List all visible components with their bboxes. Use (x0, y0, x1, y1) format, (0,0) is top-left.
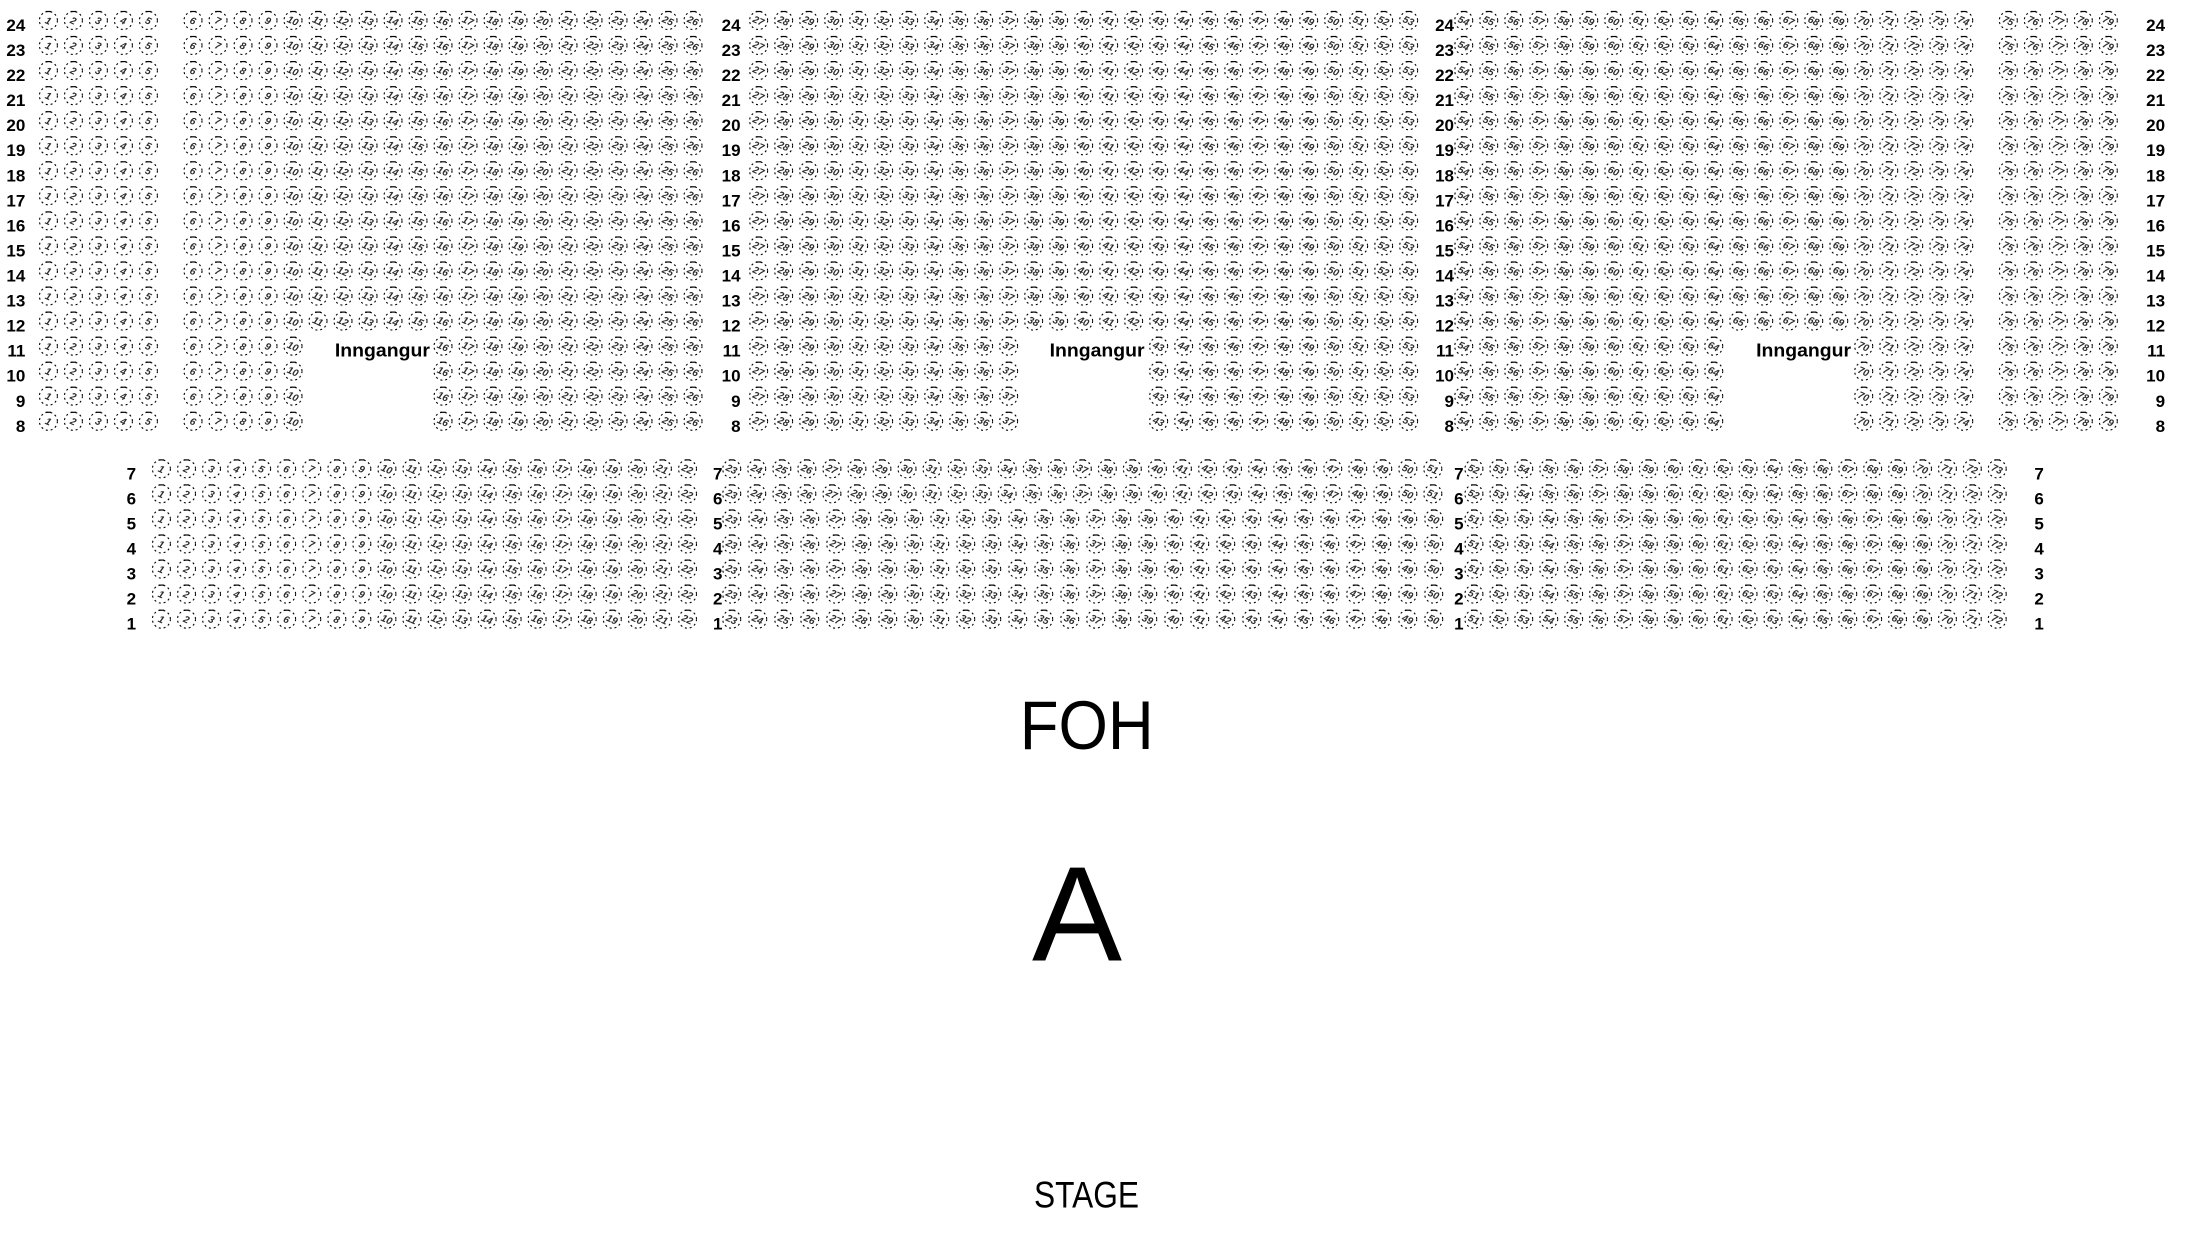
svg-text:77: 77 (2050, 215, 2065, 230)
svg-text:62: 62 (1656, 265, 1671, 280)
svg-text:78: 78 (2075, 390, 2090, 405)
svg-text:5: 5 (127, 515, 136, 534)
svg-text:75: 75 (2000, 215, 2015, 230)
svg-text:77: 77 (2050, 240, 2065, 255)
svg-text:30: 30 (826, 340, 841, 355)
svg-text:35: 35 (1036, 563, 1051, 578)
svg-text:34: 34 (926, 215, 941, 230)
svg-text:17: 17 (460, 165, 475, 180)
svg-text:56: 56 (1506, 340, 1521, 355)
svg-text:56: 56 (1506, 64, 1521, 79)
svg-text:58: 58 (1556, 315, 1571, 330)
svg-text:19: 19 (604, 513, 619, 528)
svg-text:14: 14 (385, 265, 400, 280)
svg-text:59: 59 (1665, 563, 1680, 578)
svg-text:13: 13 (360, 115, 375, 130)
svg-text:61: 61 (1631, 190, 1646, 205)
svg-text:2: 2 (180, 564, 191, 577)
svg-text:75: 75 (2000, 165, 2015, 180)
svg-text:18: 18 (1435, 166, 1454, 185)
svg-text:51: 51 (1351, 340, 1366, 355)
svg-text:32: 32 (876, 365, 891, 380)
svg-text:71: 71 (1964, 563, 1979, 578)
svg-text:61: 61 (1631, 115, 1646, 130)
svg-text:55: 55 (1481, 365, 1496, 380)
svg-text:13: 13 (360, 14, 375, 29)
svg-text:31: 31 (851, 165, 866, 180)
svg-text:5: 5 (143, 116, 153, 128)
svg-text:55: 55 (1566, 563, 1581, 578)
svg-text:5: 5 (143, 15, 153, 27)
svg-text:5: 5 (143, 191, 153, 203)
svg-text:50: 50 (1326, 115, 1341, 130)
svg-text:14: 14 (385, 64, 400, 79)
svg-text:31: 31 (932, 513, 947, 528)
svg-text:59: 59 (1581, 39, 1596, 54)
svg-text:38: 38 (1026, 90, 1041, 105)
svg-text:32: 32 (876, 290, 891, 305)
svg-text:70: 70 (1856, 215, 1871, 230)
svg-text:16: 16 (435, 165, 450, 180)
svg-text:33: 33 (984, 613, 999, 628)
svg-text:59: 59 (1581, 415, 1596, 430)
svg-text:61: 61 (1631, 390, 1646, 405)
svg-text:3: 3 (206, 514, 216, 526)
svg-text:61: 61 (1631, 340, 1646, 355)
svg-text:1: 1 (43, 291, 53, 303)
svg-text:37: 37 (1001, 190, 1016, 205)
svg-text:14: 14 (2146, 267, 2165, 286)
svg-text:71: 71 (1964, 513, 1979, 528)
svg-text:10: 10 (1435, 367, 1454, 386)
svg-text:56: 56 (1506, 14, 1521, 29)
svg-text:72: 72 (1906, 165, 1921, 180)
svg-text:16: 16 (435, 90, 450, 105)
svg-text:31: 31 (851, 265, 866, 280)
svg-text:63: 63 (1681, 315, 1696, 330)
svg-text:4: 4 (230, 488, 241, 501)
svg-text:52: 52 (1491, 513, 1506, 528)
svg-text:58: 58 (1616, 488, 1631, 503)
svg-text:72: 72 (1906, 115, 1921, 130)
svg-text:16: 16 (529, 563, 544, 578)
svg-text:63: 63 (1765, 513, 1780, 528)
svg-text:12: 12 (335, 39, 350, 54)
svg-text:9: 9 (263, 40, 273, 52)
svg-text:62: 62 (1740, 513, 1755, 528)
svg-text:18: 18 (2146, 166, 2165, 185)
svg-text:36: 36 (976, 340, 991, 355)
svg-text:78: 78 (2075, 90, 2090, 105)
svg-text:10: 10 (285, 215, 300, 230)
svg-text:13: 13 (360, 39, 375, 54)
svg-text:13: 13 (360, 315, 375, 330)
svg-text:53: 53 (1491, 488, 1506, 503)
svg-text:1: 1 (156, 614, 166, 626)
svg-text:73: 73 (1931, 140, 1946, 155)
svg-text:17: 17 (6, 191, 25, 210)
svg-text:2: 2 (67, 366, 78, 379)
svg-text:66: 66 (1756, 290, 1771, 305)
svg-text:56: 56 (1506, 39, 1521, 54)
svg-text:10: 10 (285, 390, 300, 405)
svg-text:64: 64 (1790, 513, 1805, 528)
svg-text:37: 37 (1001, 39, 1016, 54)
svg-text:58: 58 (1556, 415, 1571, 430)
svg-text:77: 77 (2050, 190, 2065, 205)
svg-text:53: 53 (1491, 463, 1506, 478)
svg-text:67: 67 (1781, 215, 1796, 230)
svg-text:63: 63 (1681, 14, 1696, 29)
svg-text:69: 69 (1831, 290, 1846, 305)
svg-text:73: 73 (1989, 463, 2004, 478)
svg-text:36: 36 (976, 240, 991, 255)
svg-text:2: 2 (67, 266, 78, 279)
svg-text:4: 4 (230, 614, 241, 627)
svg-text:9: 9 (263, 66, 273, 78)
svg-text:13: 13 (360, 90, 375, 105)
svg-text:79: 79 (2100, 315, 2115, 330)
svg-text:58: 58 (1556, 140, 1571, 155)
svg-text:50: 50 (1326, 64, 1341, 79)
svg-text:10: 10 (722, 367, 741, 386)
svg-text:18: 18 (485, 39, 500, 54)
svg-text:36: 36 (1062, 613, 1077, 628)
svg-text:50: 50 (1426, 613, 1441, 628)
svg-text:77: 77 (2050, 315, 2065, 330)
svg-text:65: 65 (1731, 315, 1746, 330)
svg-text:68: 68 (1806, 265, 1821, 280)
svg-text:50: 50 (1326, 290, 1341, 305)
svg-text:65: 65 (1731, 140, 1746, 155)
svg-text:17: 17 (554, 488, 569, 503)
svg-text:61: 61 (1631, 240, 1646, 255)
svg-text:33: 33 (901, 365, 916, 380)
svg-text:2: 2 (180, 539, 191, 552)
svg-text:9: 9 (263, 166, 273, 178)
svg-text:16: 16 (435, 415, 450, 430)
svg-text:14: 14 (479, 563, 494, 578)
svg-text:31: 31 (924, 488, 939, 503)
svg-text:64: 64 (1706, 315, 1721, 330)
svg-text:8: 8 (238, 241, 248, 253)
svg-text:70: 70 (1915, 463, 1930, 478)
svg-text:71: 71 (1881, 215, 1896, 230)
svg-text:78: 78 (2075, 64, 2090, 79)
svg-text:72: 72 (1906, 415, 1921, 430)
svg-text:65: 65 (1815, 513, 1830, 528)
svg-text:55: 55 (1481, 240, 1496, 255)
svg-text:61: 61 (1715, 513, 1730, 528)
svg-text:31: 31 (851, 215, 866, 230)
svg-text:39: 39 (1051, 14, 1066, 29)
svg-text:63: 63 (1681, 140, 1696, 155)
svg-text:7: 7 (2034, 464, 2043, 483)
svg-text:38: 38 (1099, 488, 1114, 503)
svg-text:19: 19 (510, 39, 525, 54)
svg-text:66: 66 (1840, 513, 1855, 528)
svg-text:57: 57 (1531, 14, 1546, 29)
svg-text:61: 61 (1631, 415, 1646, 430)
svg-text:69: 69 (1831, 190, 1846, 205)
svg-text:77: 77 (2050, 64, 2065, 79)
svg-text:16: 16 (435, 365, 450, 380)
svg-text:33: 33 (901, 215, 916, 230)
svg-text:50: 50 (1426, 563, 1441, 578)
svg-text:FOH: FOH (1020, 687, 1154, 764)
svg-text:15: 15 (410, 115, 425, 130)
svg-text:56: 56 (1591, 613, 1606, 628)
svg-text:39: 39 (1051, 265, 1066, 280)
svg-text:10: 10 (285, 290, 300, 305)
svg-text:59: 59 (1581, 140, 1596, 155)
svg-text:55: 55 (1481, 390, 1496, 405)
svg-text:54: 54 (1516, 463, 1531, 478)
svg-text:56: 56 (1506, 140, 1521, 155)
svg-text:35: 35 (951, 140, 966, 155)
svg-text:73: 73 (1989, 488, 2004, 503)
svg-text:39: 39 (1140, 513, 1155, 528)
svg-text:75: 75 (2000, 365, 2015, 380)
svg-text:68: 68 (1865, 488, 1880, 503)
svg-text:78: 78 (2075, 39, 2090, 54)
svg-text:35: 35 (1036, 613, 1051, 628)
svg-text:31: 31 (851, 315, 866, 330)
svg-text:11: 11 (311, 14, 325, 28)
svg-text:32: 32 (876, 190, 891, 205)
svg-text:63: 63 (1681, 115, 1696, 130)
svg-text:10: 10 (285, 165, 300, 180)
svg-text:74: 74 (1956, 190, 1971, 205)
svg-text:12: 12 (335, 265, 350, 280)
svg-text:61: 61 (1690, 463, 1705, 478)
svg-text:75: 75 (2000, 39, 2015, 54)
svg-text:39: 39 (1051, 240, 1066, 255)
svg-text:74: 74 (1956, 39, 1971, 54)
svg-text:64: 64 (1706, 39, 1721, 54)
svg-text:7: 7 (213, 116, 223, 128)
svg-text:14: 14 (385, 14, 400, 29)
svg-text:17: 17 (554, 513, 569, 528)
svg-text:8: 8 (238, 291, 248, 303)
svg-text:56: 56 (1566, 463, 1581, 478)
svg-text:1: 1 (156, 464, 166, 476)
svg-text:62: 62 (1740, 563, 1755, 578)
svg-text:16: 16 (435, 240, 450, 255)
svg-text:36: 36 (976, 90, 991, 105)
svg-text:16: 16 (435, 215, 450, 230)
svg-text:71: 71 (1964, 613, 1979, 628)
svg-text:20: 20 (1435, 116, 1454, 135)
svg-text:66: 66 (1815, 463, 1830, 478)
svg-text:51: 51 (1351, 315, 1366, 330)
svg-text:59: 59 (1640, 488, 1655, 503)
svg-text:14: 14 (385, 90, 400, 105)
svg-text:52: 52 (1376, 39, 1391, 54)
svg-text:17: 17 (1435, 191, 1454, 210)
svg-text:5: 5 (2034, 515, 2043, 534)
svg-text:34: 34 (926, 39, 941, 54)
svg-text:34: 34 (926, 64, 941, 79)
svg-text:5: 5 (143, 40, 153, 52)
svg-text:68: 68 (1806, 290, 1821, 305)
svg-text:38: 38 (1026, 215, 1041, 230)
svg-text:18: 18 (485, 64, 500, 79)
svg-text:52: 52 (1376, 365, 1391, 380)
svg-text:55: 55 (1481, 39, 1496, 54)
svg-text:62: 62 (1656, 290, 1671, 305)
svg-text:37: 37 (1001, 140, 1016, 155)
svg-text:35: 35 (951, 39, 966, 54)
svg-text:50: 50 (1400, 488, 1415, 503)
svg-text:52: 52 (1376, 190, 1391, 205)
svg-text:9: 9 (263, 15, 273, 27)
svg-text:67: 67 (1781, 265, 1796, 280)
svg-text:62: 62 (1740, 613, 1755, 628)
svg-text:15: 15 (410, 190, 425, 205)
svg-text:12: 12 (722, 317, 741, 336)
svg-text:77: 77 (2050, 390, 2065, 405)
svg-text:8: 8 (731, 417, 740, 436)
svg-text:50: 50 (1326, 340, 1341, 355)
svg-text:73: 73 (1931, 265, 1946, 280)
svg-text:1: 1 (43, 66, 53, 78)
svg-text:39: 39 (1051, 39, 1066, 54)
svg-text:6: 6 (1454, 489, 1463, 508)
svg-text:7: 7 (1454, 464, 1463, 483)
svg-text:70: 70 (1856, 365, 1871, 380)
svg-text:77: 77 (2051, 140, 2066, 155)
svg-text:2: 2 (180, 614, 191, 627)
svg-text:17: 17 (460, 390, 475, 405)
svg-text:13: 13 (360, 290, 375, 305)
svg-text:51: 51 (1351, 14, 1366, 29)
svg-text:15: 15 (504, 488, 519, 503)
svg-text:30: 30 (826, 39, 841, 54)
svg-text:7: 7 (213, 66, 223, 78)
svg-text:10: 10 (6, 367, 25, 386)
svg-text:39: 39 (1051, 115, 1066, 130)
svg-text:34: 34 (926, 115, 941, 130)
svg-text:60: 60 (1606, 265, 1621, 280)
svg-text:73: 73 (1931, 165, 1946, 180)
svg-text:37: 37 (1001, 315, 1016, 330)
svg-text:58: 58 (1556, 115, 1571, 130)
svg-text:53: 53 (1401, 64, 1416, 79)
svg-text:55: 55 (1541, 463, 1556, 478)
svg-text:35: 35 (951, 340, 966, 355)
svg-text:71: 71 (1940, 463, 1955, 478)
svg-text:51: 51 (1351, 365, 1366, 380)
svg-text:14: 14 (385, 240, 400, 255)
svg-text:56: 56 (1506, 415, 1521, 430)
svg-text:35: 35 (951, 14, 966, 29)
svg-text:73: 73 (1931, 64, 1946, 79)
svg-text:67: 67 (1781, 64, 1796, 79)
svg-text:5: 5 (143, 141, 153, 153)
svg-text:23: 23 (722, 41, 741, 60)
svg-text:79: 79 (2100, 390, 2115, 405)
svg-text:31: 31 (932, 563, 947, 578)
svg-text:59: 59 (1581, 115, 1596, 130)
svg-text:7: 7 (213, 266, 223, 278)
svg-text:19: 19 (510, 340, 525, 355)
svg-text:75: 75 (2000, 315, 2015, 330)
svg-text:58: 58 (1556, 165, 1571, 180)
svg-text:54: 54 (1456, 14, 1471, 29)
svg-text:39: 39 (1051, 215, 1066, 230)
svg-text:69: 69 (1831, 240, 1846, 255)
svg-text:7: 7 (306, 489, 316, 501)
svg-text:10: 10 (285, 39, 300, 54)
svg-text:33: 33 (984, 563, 999, 578)
svg-text:1: 1 (43, 141, 53, 153)
svg-text:73: 73 (1931, 14, 1946, 29)
svg-text:69: 69 (1831, 14, 1846, 29)
svg-text:67: 67 (1781, 190, 1796, 205)
svg-text:68: 68 (1806, 64, 1821, 79)
svg-text:53: 53 (1401, 315, 1416, 330)
svg-text:57: 57 (1591, 488, 1606, 503)
svg-text:79: 79 (2100, 365, 2115, 380)
svg-text:51: 51 (1466, 563, 1481, 578)
svg-text:12: 12 (335, 215, 350, 230)
svg-text:67: 67 (1865, 613, 1880, 628)
svg-text:56: 56 (1506, 390, 1521, 405)
svg-text:53: 53 (1401, 190, 1416, 205)
svg-text:31: 31 (851, 140, 866, 155)
svg-text:50: 50 (1426, 513, 1441, 528)
svg-text:58: 58 (1556, 290, 1571, 305)
svg-text:69: 69 (1831, 39, 1846, 54)
svg-text:17: 17 (460, 140, 475, 155)
svg-text:55: 55 (1481, 340, 1496, 355)
svg-text:6: 6 (188, 266, 198, 278)
svg-text:12: 12 (1435, 317, 1454, 336)
svg-text:58: 58 (1556, 365, 1571, 380)
svg-text:8: 8 (332, 514, 342, 526)
svg-text:51: 51 (1351, 39, 1366, 54)
svg-text:79: 79 (2100, 415, 2115, 430)
svg-text:72: 72 (1906, 90, 1921, 105)
svg-text:67: 67 (1781, 14, 1796, 29)
svg-text:76: 76 (2025, 340, 2040, 355)
svg-text:59: 59 (1640, 463, 1655, 478)
svg-text:54: 54 (1541, 563, 1556, 578)
svg-text:75: 75 (2000, 115, 2015, 130)
svg-text:79: 79 (2100, 190, 2115, 205)
svg-text:8: 8 (238, 216, 248, 228)
svg-text:70: 70 (1940, 513, 1955, 528)
svg-text:75: 75 (2000, 64, 2015, 79)
svg-text:58: 58 (1616, 463, 1631, 478)
svg-text:71: 71 (1881, 365, 1896, 380)
svg-text:30: 30 (826, 265, 841, 280)
svg-text:79: 79 (2100, 240, 2115, 255)
svg-text:30: 30 (906, 613, 921, 628)
svg-text:62: 62 (1656, 390, 1671, 405)
svg-text:69: 69 (1890, 488, 1905, 503)
svg-text:72: 72 (1989, 513, 2004, 528)
svg-text:61: 61 (1715, 563, 1730, 578)
svg-text:3: 3 (206, 489, 216, 501)
svg-text:75: 75 (2000, 90, 2015, 105)
svg-text:7: 7 (306, 589, 316, 601)
svg-text:7: 7 (213, 416, 223, 428)
svg-text:75: 75 (2000, 190, 2015, 205)
svg-text:59: 59 (1581, 14, 1596, 29)
svg-text:54: 54 (1456, 90, 1471, 105)
